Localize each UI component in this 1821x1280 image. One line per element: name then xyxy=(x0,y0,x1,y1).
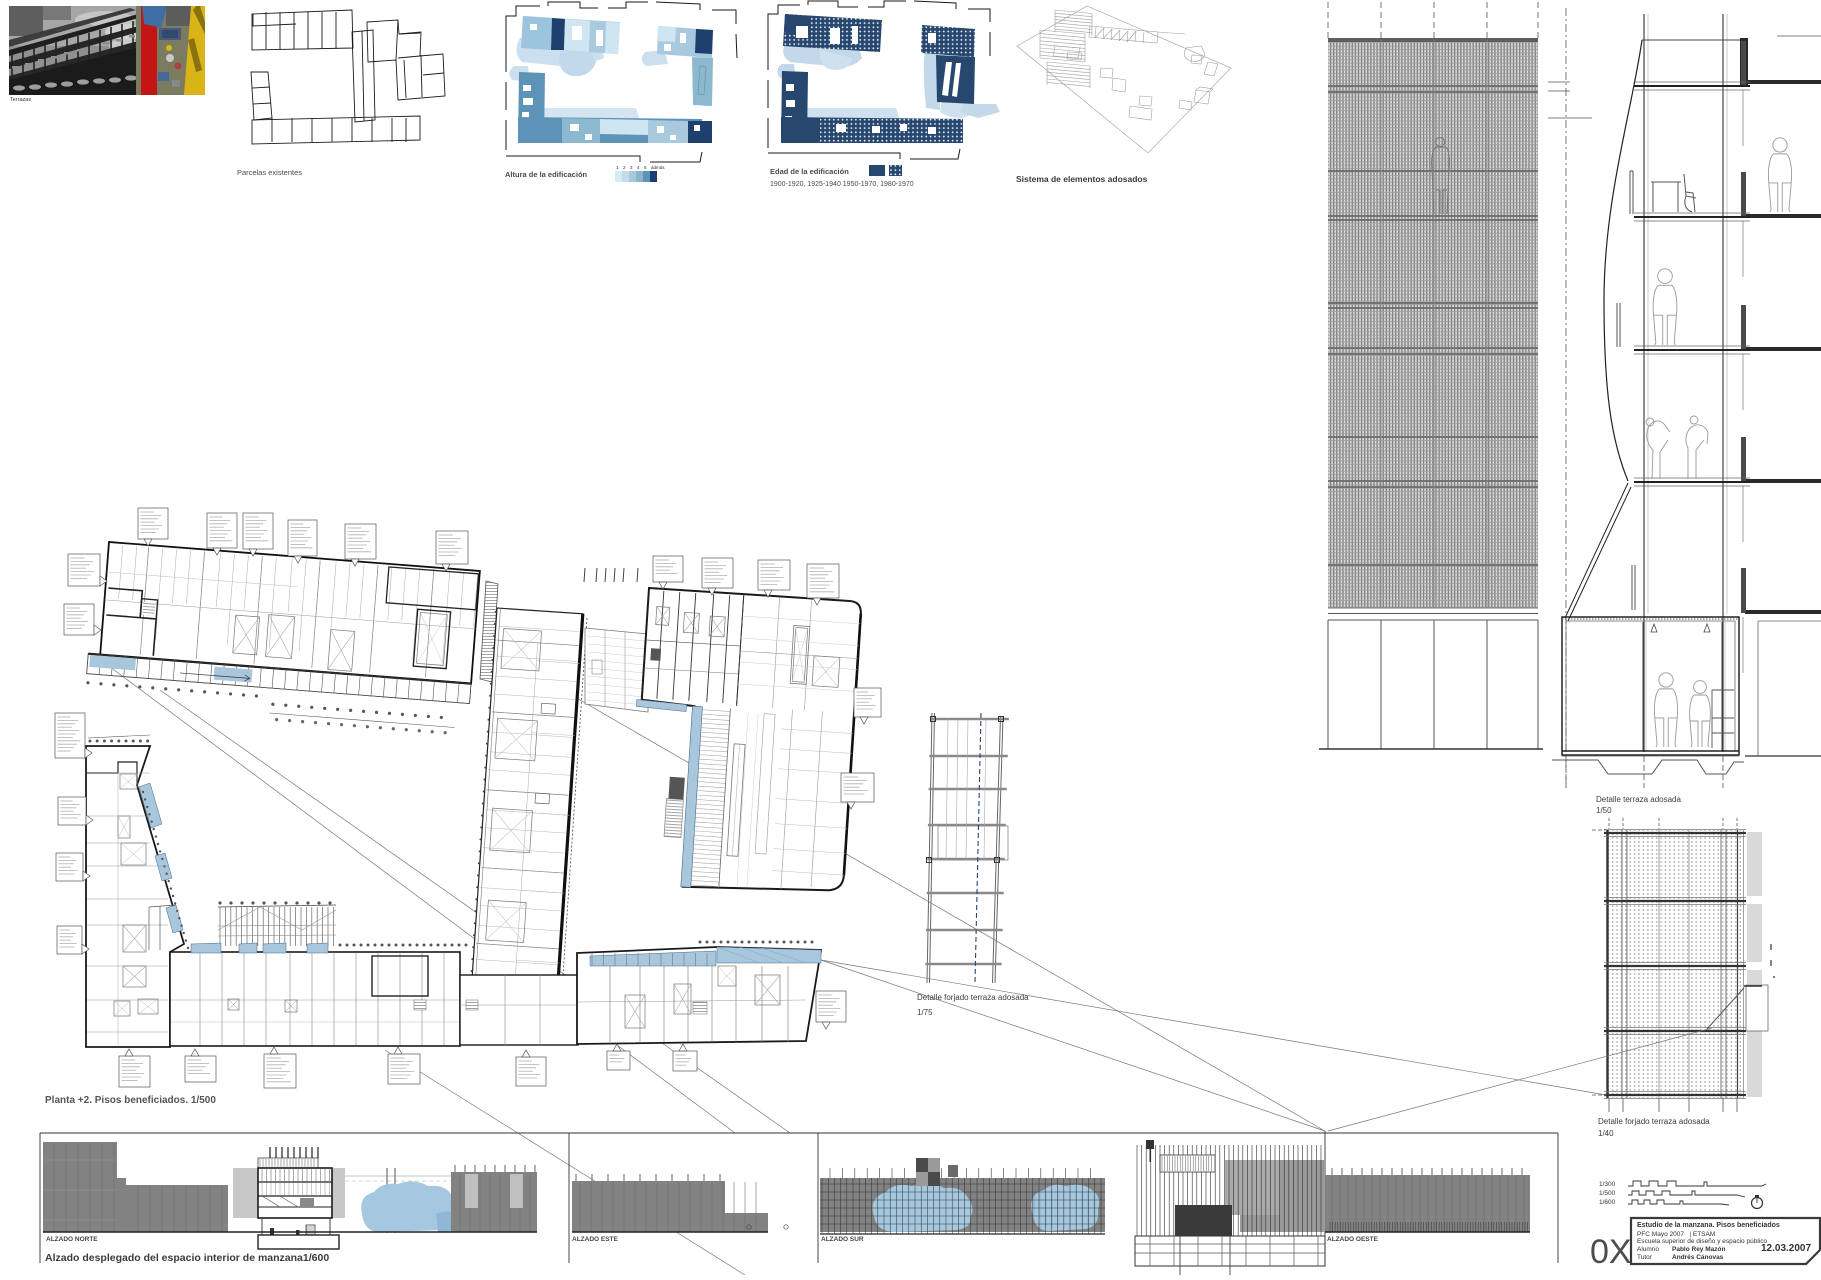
svg-text:Alzado desplegado del espacio: Alzado desplegado del espacio interior d… xyxy=(45,1252,329,1264)
svg-text:Terrazas: Terrazas xyxy=(10,97,31,103)
svg-text:Detalle forjado terraza adosad: Detalle forjado terraza adosada xyxy=(1598,1117,1710,1126)
svg-text:Escuela superior de diseño y e: Escuela superior de diseño y espacio púb… xyxy=(1637,1238,1767,1245)
svg-text:ALZADO SUR: ALZADO SUR xyxy=(821,1236,864,1243)
svg-text:Edad de la edificación: Edad de la edificación xyxy=(770,167,849,176)
svg-text:Alumno: Alumno xyxy=(1637,1246,1659,1253)
svg-text:1/300: 1/300 xyxy=(1599,1181,1616,1188)
svg-text:Estudio de la manzana. Pisos b: Estudio de la manzana. Pisos beneficiado… xyxy=(1637,1222,1780,1229)
svg-text:Tutor: Tutor xyxy=(1637,1254,1653,1261)
svg-text:PFC Mayo 2007 | ETSAM: PFC Mayo 2007 | ETSAM xyxy=(1637,1231,1715,1238)
svg-text:ALZADO ESTE: ALZADO ESTE xyxy=(572,1236,619,1243)
svg-text:ALZADO OESTE: ALZADO OESTE xyxy=(1327,1236,1379,1243)
svg-text:Planta +2. Pisos beneficiados.: Planta +2. Pisos beneficiados. 1/500 xyxy=(45,1095,216,1106)
svg-text:Andrés Cánovas: Andrés Cánovas xyxy=(1672,1254,1724,1261)
svg-text:1/75: 1/75 xyxy=(917,1008,933,1017)
svg-text:1/500: 1/500 xyxy=(1599,1190,1616,1197)
svg-text:Pablo Rey Mazón: Pablo Rey Mazón xyxy=(1672,1246,1725,1253)
svg-text:12.03.2007: 12.03.2007 xyxy=(1761,1243,1811,1254)
svg-text:Detalle forjado terraza adosad: Detalle forjado terraza adosada xyxy=(917,993,1029,1002)
svg-text:Parcelas existentes: Parcelas existentes xyxy=(237,168,302,177)
svg-text:1900-1920, 1925-1940 1950-1970: 1900-1920, 1925-1940 1950-1970, 1980-197… xyxy=(770,181,914,188)
svg-text:Detalle terraza adosada: Detalle terraza adosada xyxy=(1596,795,1681,804)
svg-text:Sistema de elementos adosados: Sistema de elementos adosados xyxy=(1016,174,1148,184)
svg-text:ALZADO NORTE: ALZADO NORTE xyxy=(46,1236,98,1243)
svg-text:0X: 0X xyxy=(1590,1233,1632,1271)
svg-text:1/50: 1/50 xyxy=(1596,806,1612,815)
svg-text:Altura de la edificación: Altura de la edificación xyxy=(505,170,588,179)
svg-text:ádmás: ádmás xyxy=(651,165,665,170)
svg-text:1/600: 1/600 xyxy=(1599,1199,1616,1206)
svg-text:1/40: 1/40 xyxy=(1598,1129,1614,1138)
